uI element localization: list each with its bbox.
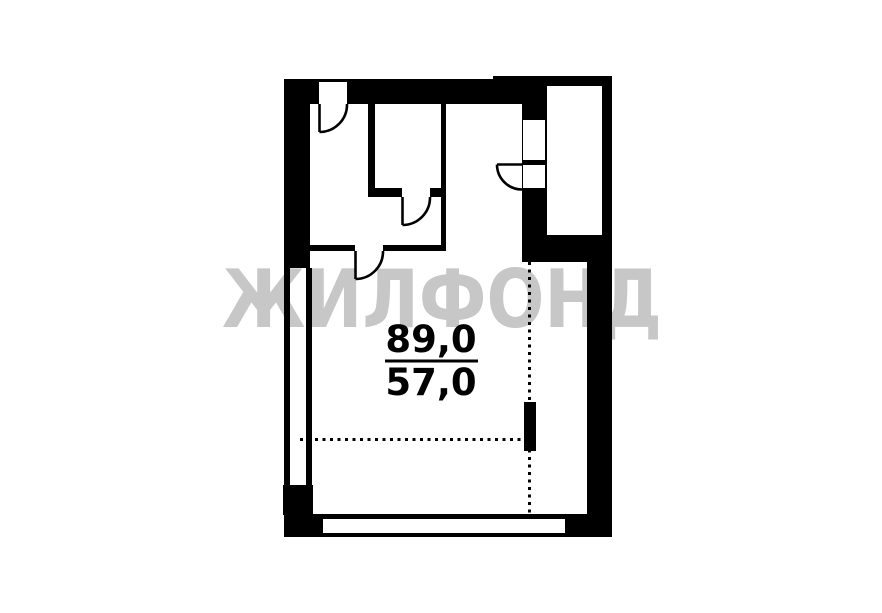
stair-shaft-right-wall	[602, 76, 612, 235]
left-window-inner-line	[306, 268, 312, 485]
floor-plan-page: ЖИЛФОНД89,057,0	[0, 0, 882, 613]
stair-shaft-top-wall	[493, 76, 612, 86]
left-window-outer-line	[284, 268, 290, 485]
closet-left-wall	[368, 104, 375, 188]
total-area-value: 89,0	[385, 318, 476, 361]
bottom-window	[323, 519, 565, 533]
closet-door-opening	[402, 188, 430, 197]
top-door-opening	[319, 82, 347, 104]
floor-plan-svg: ЖИЛФОНД89,057,0	[0, 0, 882, 613]
entry-niche-opening	[523, 120, 545, 160]
closet-door-swing-arc	[403, 197, 431, 225]
corridor-wall	[441, 104, 446, 251]
right-wall	[587, 262, 612, 537]
wall-below-shaft	[522, 235, 612, 262]
entry-door-swing-arc	[497, 165, 522, 190]
bottom-left-corner-block	[283, 485, 313, 515]
living-area-value: 57,0	[385, 361, 476, 404]
left-wall	[284, 79, 310, 268]
entry-door-opening	[523, 165, 545, 188]
divider-door-opening	[355, 245, 383, 251]
top-door-swing-arc	[320, 104, 348, 132]
